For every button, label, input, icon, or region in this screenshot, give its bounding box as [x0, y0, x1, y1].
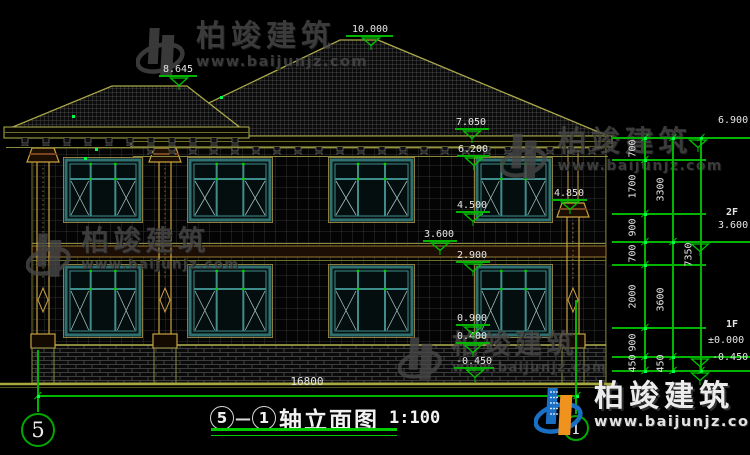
level-label: 1F: [726, 319, 738, 330]
elevation-value: 3.600: [411, 229, 467, 240]
dimension-node: [644, 241, 647, 244]
elevation-triangle-icon: [560, 201, 580, 215]
title-axis-bubble-to: 1: [252, 406, 276, 430]
level-extension-line: [612, 159, 706, 160]
elevation-value: 8.645: [150, 64, 206, 75]
elevation-drawing-canvas: 10.0008.6457.0506.2004.8504.5003.6002.90…: [0, 0, 750, 455]
elevation-triangle-icon: [463, 344, 483, 358]
dimension-node: [644, 264, 647, 267]
green-dot: [72, 115, 75, 118]
elevation-value: 10.000: [342, 24, 398, 35]
dimension-node: [644, 137, 647, 140]
elevation-triangle-icon: [430, 242, 450, 256]
baijun-logo-icon: [534, 382, 586, 440]
dimension-node: [644, 356, 647, 359]
dimension-value: 3300: [656, 172, 667, 208]
elevation-value: 2.900: [444, 250, 500, 261]
title-underline-thin: [211, 435, 397, 436]
overall-dimension-value: 16800: [283, 375, 331, 388]
dimension-value: 450: [628, 346, 639, 382]
elevation-value: 4.500: [444, 200, 500, 211]
elevation-triangle-icon: [690, 243, 710, 257]
level-label: ±0.000: [708, 335, 744, 346]
elevation-value: -0.450: [446, 356, 502, 367]
elevation-triangle-icon: [169, 77, 189, 91]
title-axis-bubble-from: 5: [210, 406, 234, 430]
elevation-triangle-icon: [464, 157, 484, 171]
dimension-value: 700: [628, 235, 639, 271]
level-label: 6.900: [718, 115, 748, 126]
dimension-node: [644, 159, 647, 162]
elevation-value: 0.900: [444, 313, 500, 324]
elevation-triangle-icon: [463, 213, 483, 227]
axis-bubble-5: 5: [21, 413, 55, 447]
level-label: 2F: [726, 207, 738, 218]
dimension-node: [644, 213, 647, 216]
elevation-value: 4.850: [541, 188, 597, 199]
green-dot: [37, 395, 40, 398]
elevation-triangle-icon: [690, 358, 710, 372]
watermark-brand-text: 柏竣建筑: [594, 382, 750, 412]
elevation-triangle-icon: [463, 326, 483, 340]
level-extension-line: [612, 213, 706, 214]
dimension-value: 2000: [628, 278, 639, 314]
dimension-value: 1700: [628, 169, 639, 205]
green-dot: [220, 96, 223, 99]
elevation-triangle-icon: [361, 37, 381, 51]
drawing-scale: 1:100: [389, 408, 440, 428]
brand-logo: 柏竣建筑www.baijunjz.com: [534, 382, 750, 440]
dimension-node: [672, 137, 675, 140]
green-dot: [84, 157, 87, 160]
dimension-node: [644, 370, 647, 373]
elevation-triangle-icon: [463, 263, 483, 277]
dimension-chain-line: [672, 138, 673, 371]
elevation-triangle-icon: [462, 130, 482, 144]
level-extension-line: [612, 327, 706, 328]
title-underline-thick: [211, 428, 397, 431]
elevation-triangle-icon: [465, 369, 485, 383]
title-axis-dash: —: [235, 409, 251, 428]
dimension-node: [672, 356, 675, 359]
axis-grid-line: [37, 350, 38, 412]
dimension-value: 450: [656, 346, 667, 382]
dimension-value: 700: [628, 131, 639, 167]
elevation-triangle-icon: [688, 139, 708, 153]
level-label: -0.450: [712, 352, 748, 363]
dimension-value: 3600: [656, 281, 667, 317]
dimension-node: [672, 241, 675, 244]
green-dot: [95, 148, 98, 151]
watermark-url-text: www.baijunjz.com: [594, 414, 750, 430]
elevation-value: 6.200: [445, 144, 501, 155]
dimension-node: [672, 370, 675, 373]
elevation-value: 7.050: [443, 117, 499, 128]
level-label: 3.600: [718, 220, 748, 231]
dimension-chain-line: [644, 138, 645, 371]
dimension-node: [644, 327, 647, 330]
overall-dimension-line: [38, 395, 577, 396]
